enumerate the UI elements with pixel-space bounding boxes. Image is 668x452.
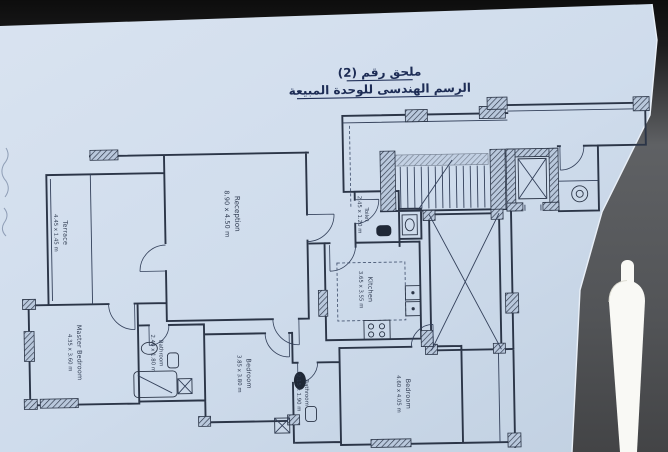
svg-text:Toilet: Toilet (363, 206, 369, 221)
wc-fixture (376, 225, 391, 236)
svg-text:2.15 x 1.90 m: 2.15 x 1.90 m (295, 374, 302, 412)
svg-text:Terrace: Terrace (61, 219, 69, 245)
photo-of-floor-plan: ملحق رقم (2) الرسم الهندسى للوحدة المبيع… (0, 0, 668, 452)
paper-sheet (0, 4, 657, 452)
svg-text:3.65 x 3.55 m: 3.65 x 3.55 m (357, 271, 364, 309)
svg-text:Bedroom: Bedroom (245, 358, 254, 388)
svg-text:4.60 x 4.05 m: 4.60 x 4.05 m (395, 375, 402, 413)
svg-text:Bathroom: Bathroom (303, 379, 309, 406)
photo-canvas: ملحق رقم (2) الرسم الهندسى للوحدة المبيع… (0, 0, 668, 452)
svg-text:Reception: Reception (233, 196, 243, 232)
svg-text:8.90 x 4.50 m: 8.90 x 4.50 m (223, 190, 232, 237)
svg-text:4.35 x 3.60 m: 4.35 x 3.60 m (66, 334, 73, 372)
svg-text:Master Bedroom: Master Bedroom (75, 325, 84, 381)
svg-text:3.85 x 3.80 m: 3.85 x 3.80 m (235, 355, 242, 393)
svg-text:2.45 x 1.20 m: 2.45 x 1.20 m (356, 196, 363, 234)
svg-text:Kitchen: Kitchen (366, 277, 374, 303)
svg-text:2.40 x 1.80 m: 2.40 x 1.80 m (149, 334, 156, 372)
svg-text:Bathroom: Bathroom (157, 340, 163, 367)
svg-text:Bedroom: Bedroom (404, 379, 413, 409)
svg-text:4.45 x 1.45 m: 4.45 x 1.45 m (52, 214, 59, 252)
title-line-1: ملحق رقم (2) (338, 65, 422, 80)
